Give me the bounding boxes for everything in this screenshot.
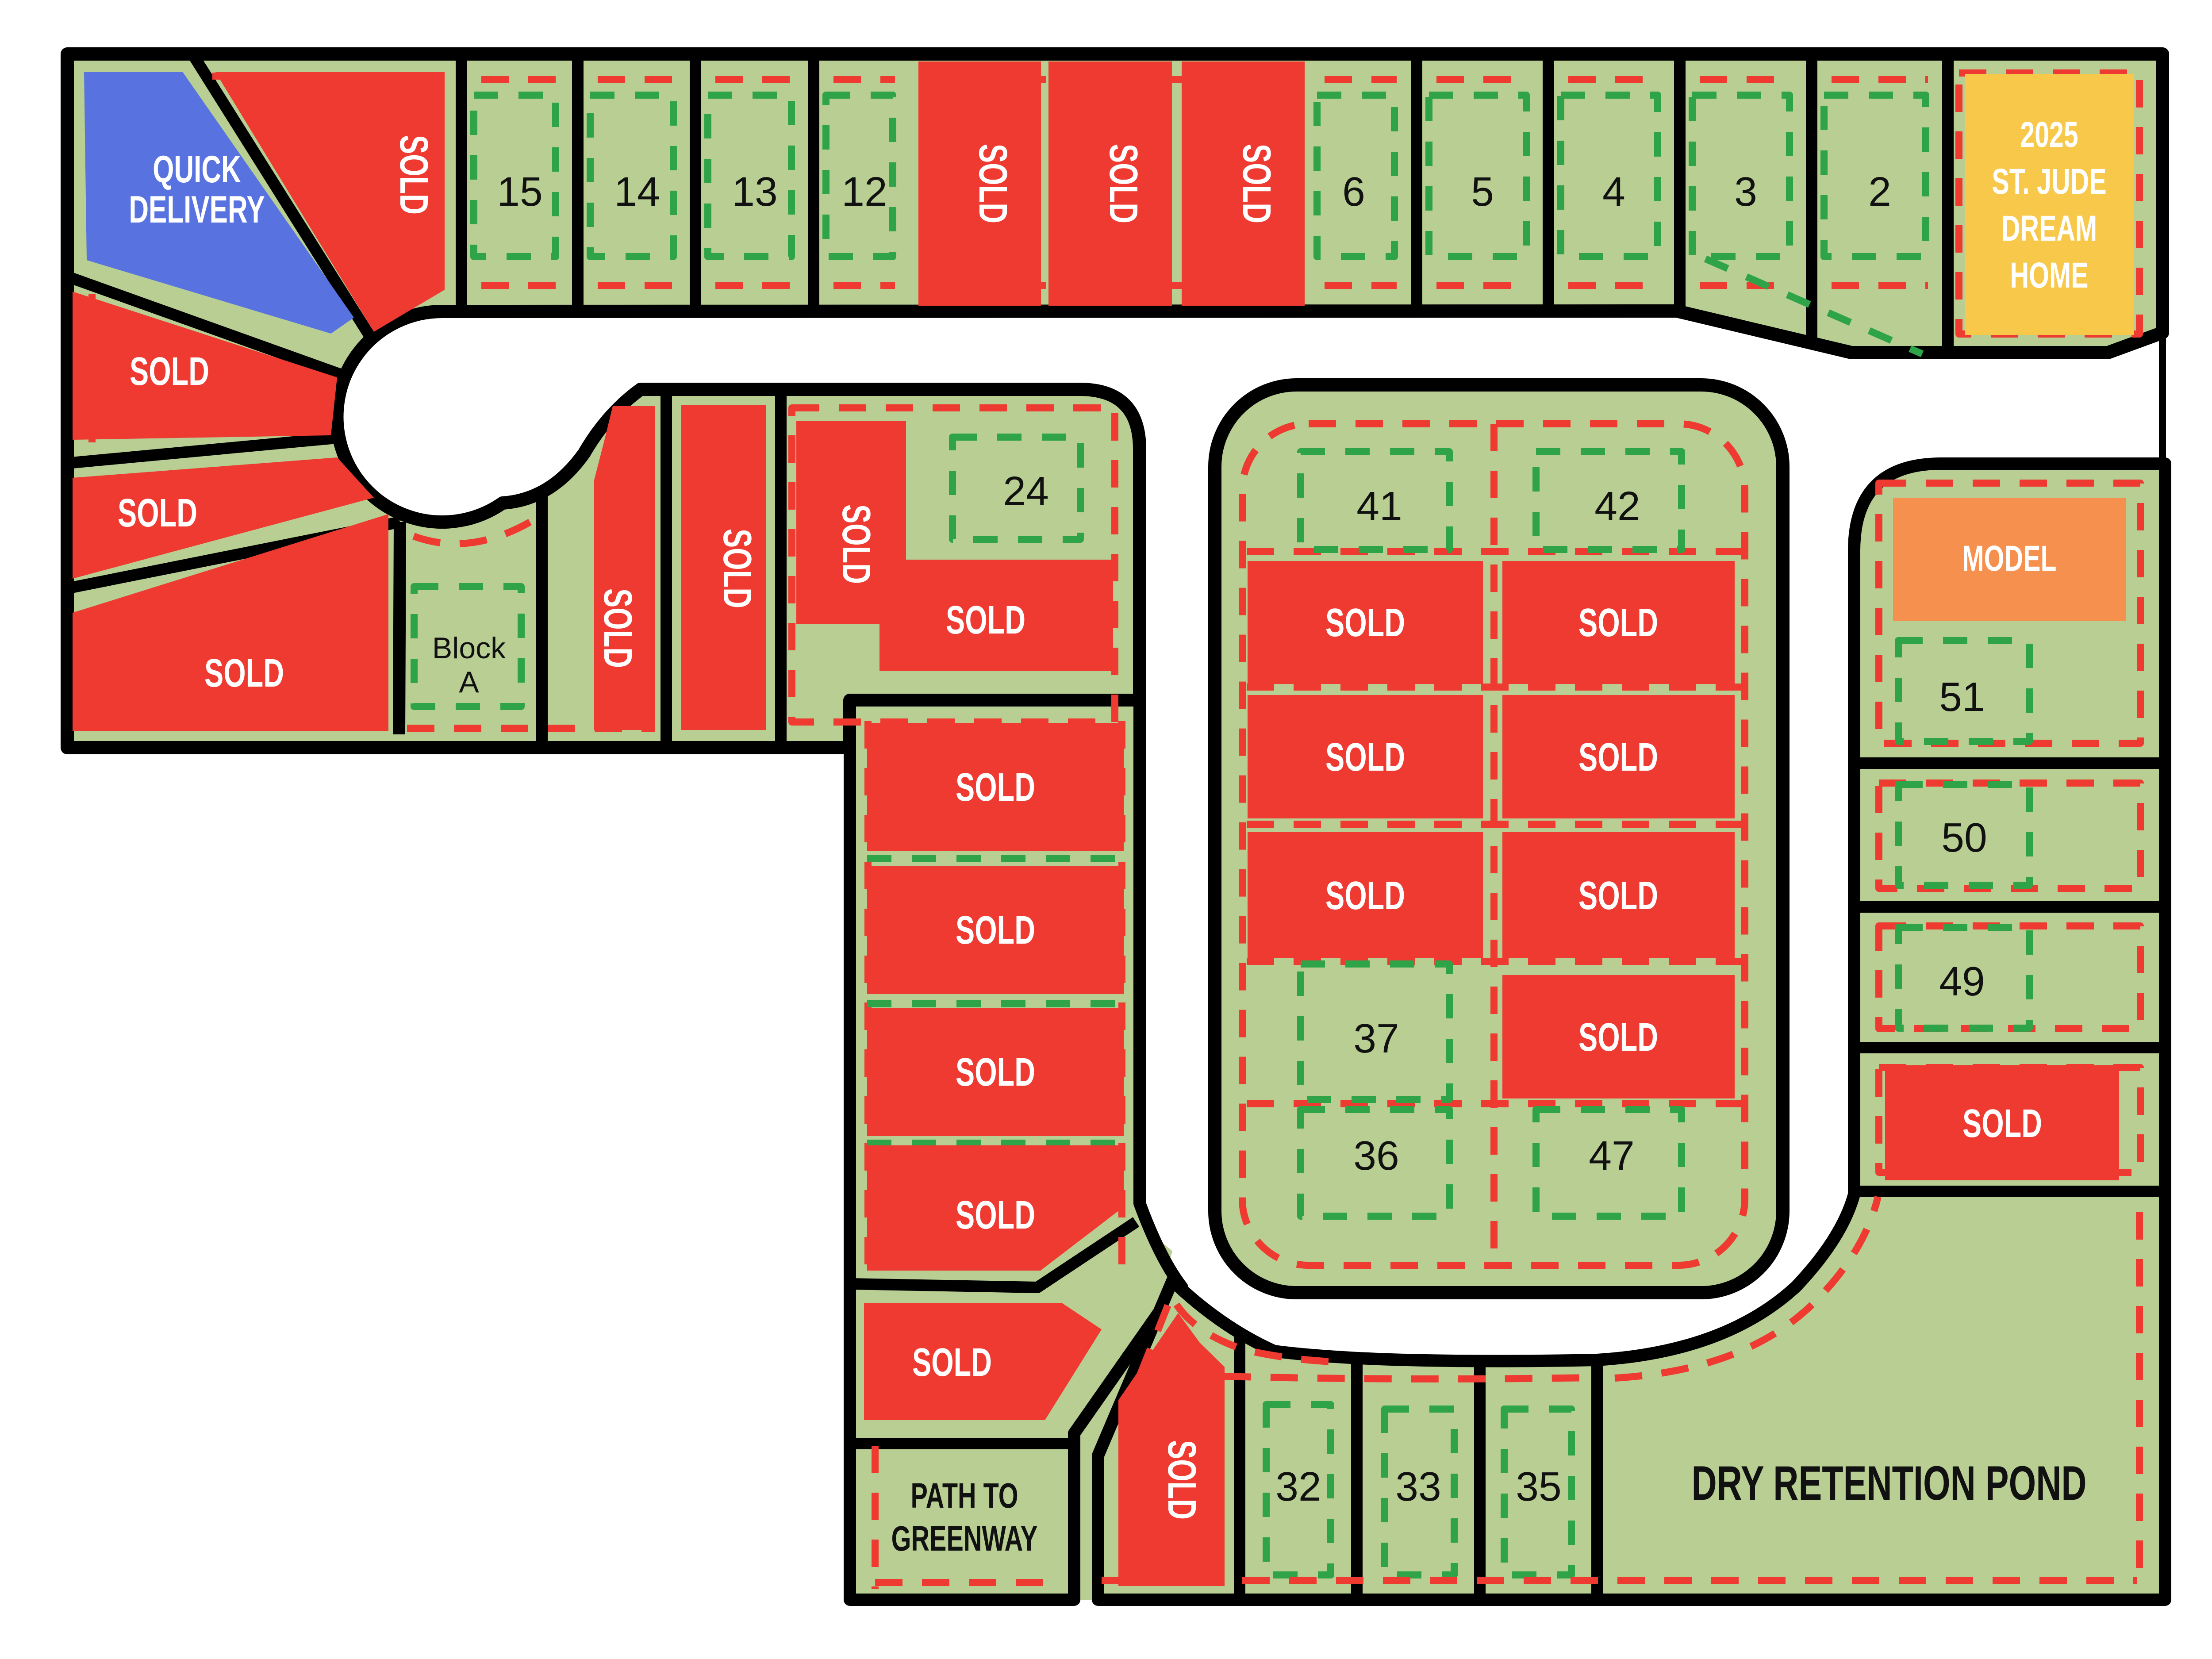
svg-text:SOLD: SOLD [971,144,1015,223]
svg-text:SOLD: SOLD [1325,735,1405,780]
svg-text:4: 4 [1602,169,1625,215]
svg-text:5: 5 [1471,169,1494,215]
svg-text:12: 12 [841,169,887,215]
svg-text:SOLD: SOLD [956,765,1035,810]
svg-text:ST. JUDE: ST. JUDE [1992,161,2106,202]
svg-text:SOLD: SOLD [946,598,1025,642]
svg-text:Block: Block [432,631,506,665]
svg-text:SOLD: SOLD [956,1050,1035,1094]
svg-text:50: 50 [1941,814,1987,860]
svg-text:SOLD: SOLD [1234,144,1279,223]
svg-text:SOLD: SOLD [956,908,1035,952]
svg-text:32: 32 [1275,1463,1321,1509]
svg-text:51: 51 [1939,674,1985,720]
svg-text:35: 35 [1516,1463,1561,1509]
svg-text:SOLD: SOLD [715,529,760,608]
svg-text:SOLD: SOLD [1101,144,1146,223]
svg-text:24: 24 [1003,468,1048,514]
svg-text:SOLD: SOLD [392,135,436,215]
svg-text:SOLD: SOLD [1578,1015,1658,1060]
svg-text:42: 42 [1594,483,1640,529]
svg-text:49: 49 [1939,958,1985,1004]
svg-text:MODEL: MODEL [1962,538,2056,579]
svg-text:SOLD: SOLD [1160,1440,1204,1520]
svg-text:DRY RETENTION POND: DRY RETENTION POND [1691,1456,2086,1510]
svg-text:33: 33 [1395,1463,1441,1509]
svg-text:QUICK: QUICK [153,148,241,190]
svg-text:SOLD: SOLD [912,1340,992,1385]
svg-text:2025: 2025 [2020,115,2078,155]
svg-text:2: 2 [1868,169,1891,215]
svg-text:36: 36 [1353,1133,1399,1179]
svg-text:HOME: HOME [2010,255,2088,296]
svg-text:6: 6 [1342,169,1365,215]
svg-text:SOLD: SOLD [1325,873,1405,918]
svg-text:SOLD: SOLD [1325,600,1405,645]
svg-text:SOLD: SOLD [130,349,209,394]
svg-text:SOLD: SOLD [956,1193,1035,1237]
svg-text:13: 13 [732,169,777,215]
svg-text:SOLD: SOLD [834,504,879,584]
svg-text:SOLD: SOLD [1962,1101,2042,1146]
svg-text:PATH TO: PATH TO [910,1476,1018,1516]
svg-text:SOLD: SOLD [1578,600,1658,645]
svg-text:A: A [459,665,479,699]
svg-text:SOLD: SOLD [1578,735,1658,780]
svg-text:15: 15 [497,169,542,215]
svg-text:47: 47 [1589,1133,1634,1179]
svg-text:SOLD: SOLD [595,588,640,668]
svg-text:DREAM: DREAM [2001,208,2097,249]
svg-text:3: 3 [1734,169,1757,215]
svg-text:SOLD: SOLD [204,651,284,695]
svg-text:SOLD: SOLD [1578,873,1658,918]
svg-text:37: 37 [1353,1015,1399,1061]
svg-text:GREENWAY: GREENWAY [891,1519,1038,1559]
svg-text:41: 41 [1356,483,1402,529]
svg-text:DELIVERY: DELIVERY [129,188,265,230]
svg-text:SOLD: SOLD [118,491,197,535]
svg-text:14: 14 [614,169,660,215]
